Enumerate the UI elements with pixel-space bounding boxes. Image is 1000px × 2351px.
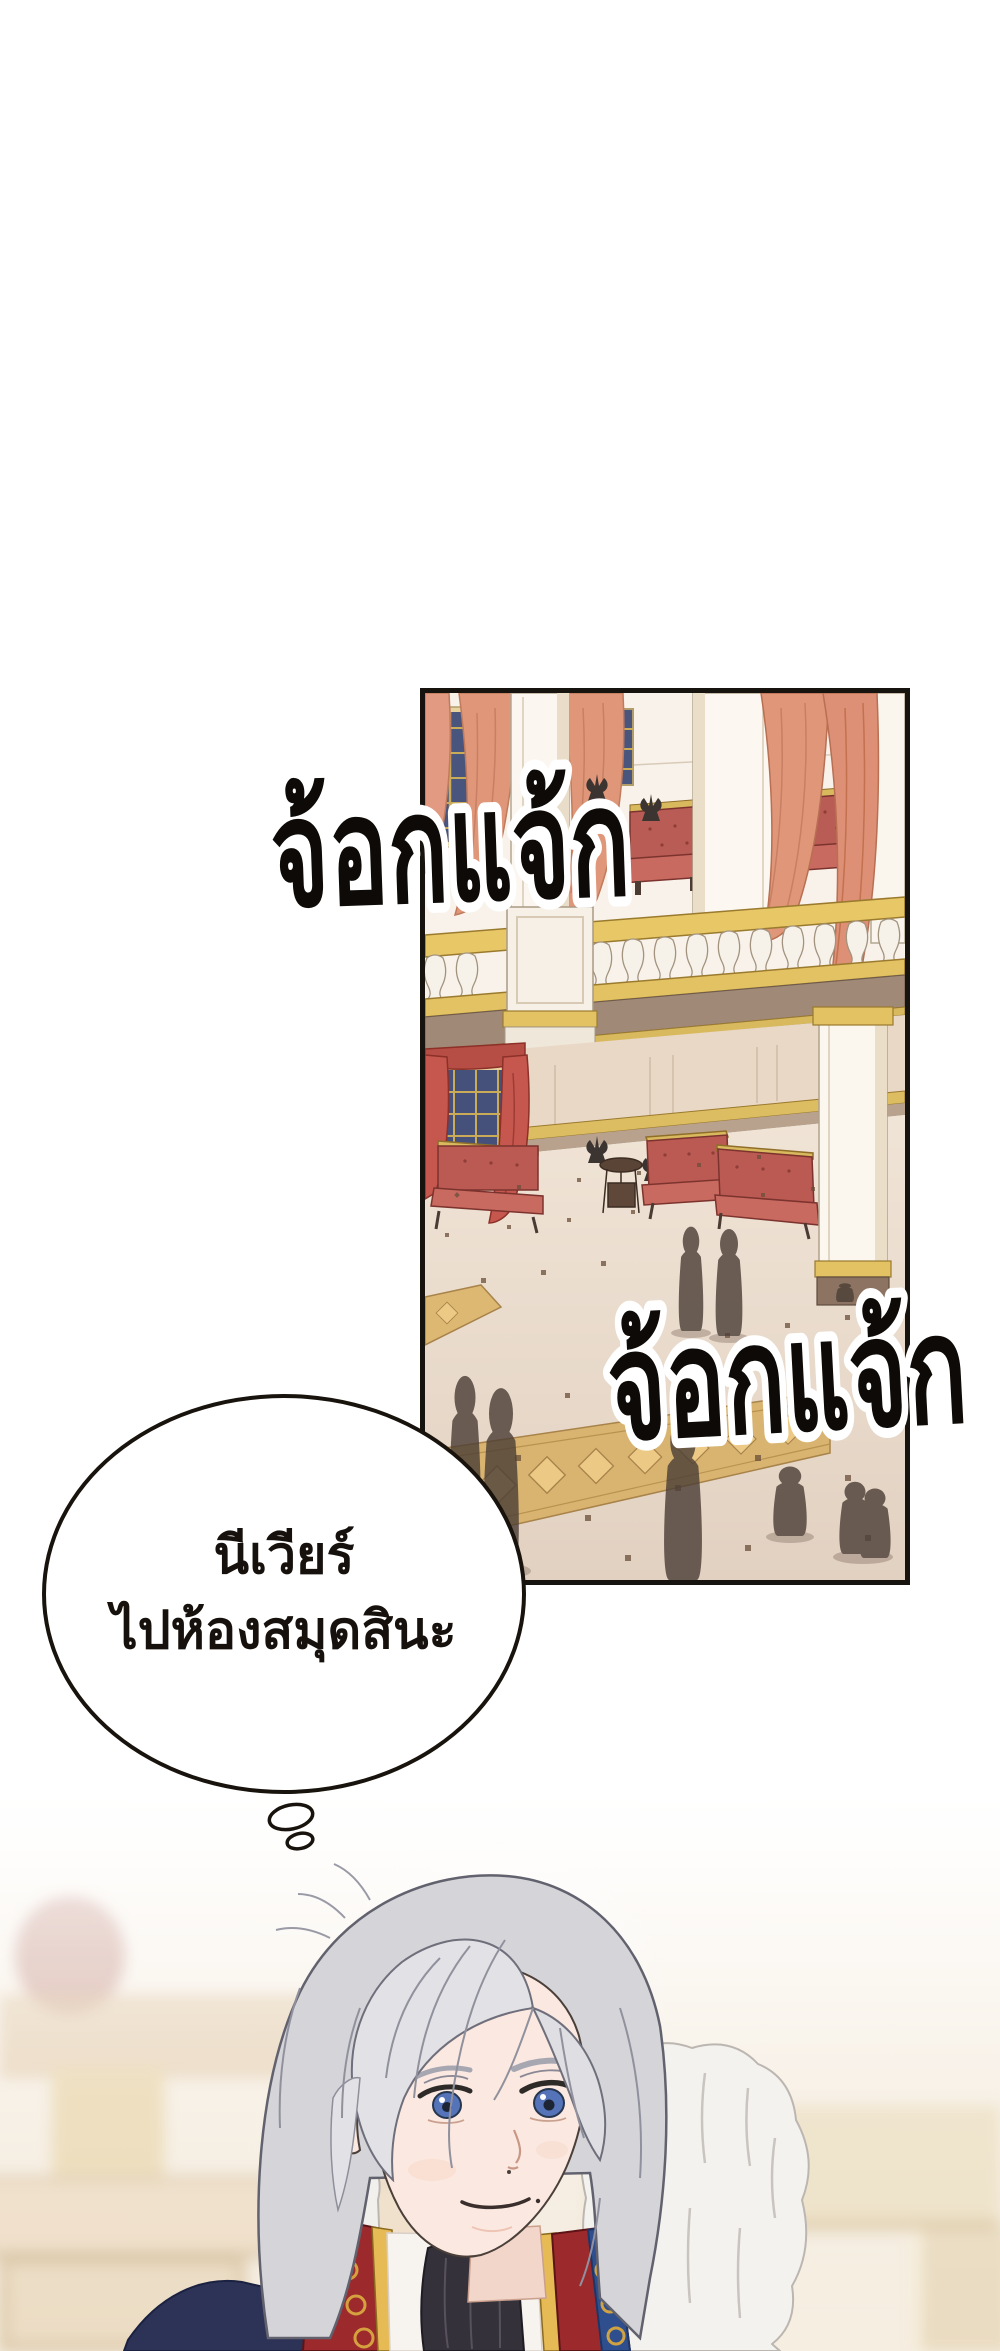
thought-trail-bubbles bbox=[255, 1795, 335, 1857]
bottom-scene bbox=[0, 1778, 1000, 2351]
pier-b bbox=[693, 693, 773, 919]
sfx-top-text: จ้อกแจ้ก bbox=[268, 755, 633, 942]
thought-bubble: นีเวียร์ ไปห้องสมุดสินะ bbox=[42, 1394, 526, 1794]
character-illustration bbox=[0, 1778, 1000, 2351]
comic-page: จ้อกแจ้ก จ้อกแจ้ก นีเวียร์ ไปห้องสมุดสิน… bbox=[0, 0, 1000, 2351]
thought-line-2: ไปห้องสมุดสินะ bbox=[111, 1594, 456, 1669]
sfx-top: จ้อกแจ้ก bbox=[240, 700, 680, 980]
beauty-mark bbox=[507, 2170, 511, 2174]
thought-line-1: นีเวียร์ bbox=[214, 1519, 355, 1594]
sfx-bottom-text: จ้อกแจ้ก bbox=[603, 1282, 971, 1475]
sfx-bottom: จ้อกแจ้ก bbox=[580, 1240, 1000, 1520]
